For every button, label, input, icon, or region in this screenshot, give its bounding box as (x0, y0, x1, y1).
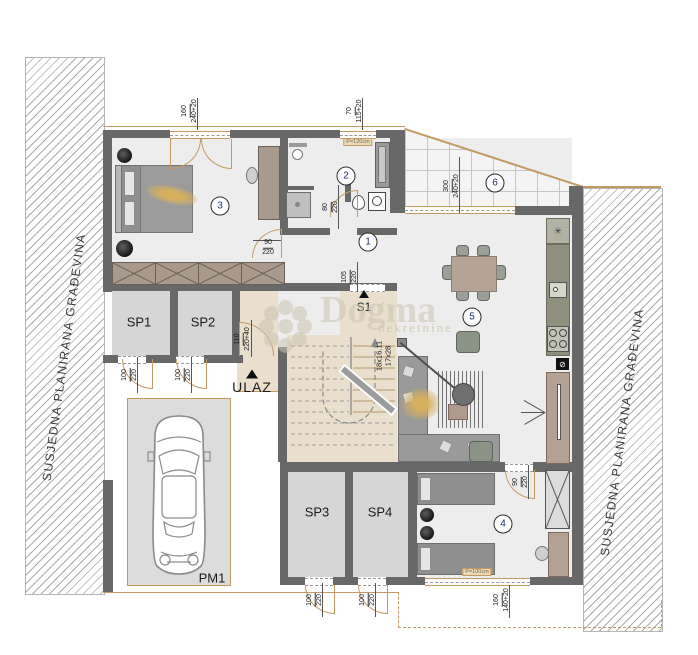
floor-plan: SUSJEDNA PLANIRANA GRAĐEVINA SUSJEDNA PL… (0, 0, 698, 655)
car (141, 410, 217, 578)
dim-bath-door: 80220 (322, 201, 341, 213)
plant-pot (420, 508, 434, 522)
bed-pillow (124, 201, 135, 226)
decor-branch (402, 388, 440, 420)
tv (557, 384, 561, 440)
armchair (469, 441, 493, 462)
sp4-label: SP4 (368, 505, 393, 520)
bathtub-inner (378, 146, 386, 183)
wall (204, 355, 243, 363)
pm1-label: PM1 (199, 571, 226, 586)
cabinet (548, 532, 569, 577)
wall (530, 577, 583, 585)
site-edge-line (583, 186, 661, 188)
garage-front-line (103, 592, 399, 593)
sink-bowl (292, 149, 303, 160)
lot-dashed-line (398, 592, 399, 628)
plant-pot (117, 148, 132, 163)
dim-bedroom-a-window: 160240+20 (181, 99, 200, 123)
kitchen-sink-dot (553, 287, 558, 292)
wall (390, 138, 397, 213)
wall (103, 130, 170, 138)
wall (103, 130, 112, 292)
dim-bath-window: 70115+20 (346, 99, 365, 122)
wall (280, 577, 305, 585)
power-box: ⊘ (556, 358, 569, 370)
bath-partition (288, 186, 314, 190)
wall (103, 355, 118, 363)
fridge: ✳ (546, 218, 570, 244)
lot-dashed-line (398, 627, 661, 628)
floor-lamp-shade (452, 383, 475, 406)
dim-terrace: 300240+20 (443, 174, 462, 198)
lot-dashed-line (661, 600, 662, 627)
room-number-bathroom: 2 (337, 167, 356, 186)
wall (386, 577, 425, 585)
french-door-window (170, 131, 230, 139)
wall (280, 138, 288, 235)
room-number-bedroom-a: 3 (211, 197, 230, 216)
shower-drain (295, 202, 300, 207)
burner (559, 340, 567, 348)
dim-entry-door: 110220+40 (234, 327, 253, 351)
dim-sp4-door: 100220 (359, 593, 378, 607)
entrance-arrow-icon (246, 370, 258, 379)
plant-pot (420, 526, 434, 540)
desk-chair (246, 167, 258, 184)
plant-pot (116, 240, 133, 257)
dim-bedroom-a-door: 90220 (262, 239, 274, 258)
wall (230, 130, 340, 138)
terrace-sliding-door (405, 206, 515, 214)
wall (278, 347, 287, 462)
wardrobe (112, 262, 285, 285)
dim-sp2-door: 100220 (175, 368, 194, 382)
dim-bedroom-b-window: 160140+20 (493, 588, 512, 612)
wall (345, 472, 353, 578)
watermark-tagline: nekretnine (378, 320, 453, 336)
dining-table (451, 256, 497, 292)
desk (258, 146, 280, 220)
coffee-table (448, 404, 468, 420)
watermark-logo (258, 299, 312, 353)
burner (559, 329, 567, 337)
dim-bedroom-b-door: 90220 (512, 476, 531, 488)
wall (103, 480, 113, 592)
wall (333, 577, 358, 585)
sp4-floor (353, 472, 408, 577)
dim-s1-opening: 105220 (341, 270, 360, 284)
dining-chair (477, 245, 490, 256)
sp2-label: SP2 (191, 315, 216, 330)
bed-pillow (420, 547, 431, 571)
burner (549, 329, 557, 337)
dining-chair (496, 265, 506, 280)
wall (170, 291, 178, 361)
sp3-label: SP3 (305, 505, 330, 520)
tv-view-line (521, 412, 545, 413)
bath-parapet-note: P=120cm (343, 138, 372, 146)
wall (280, 472, 288, 585)
dim-sp1-door: 100220 (121, 368, 140, 382)
kitchen-sink (549, 282, 567, 298)
burner (549, 340, 557, 348)
washing-machine-drum (372, 196, 382, 206)
bed-pillow (124, 171, 135, 196)
wall (280, 228, 330, 235)
wall (572, 196, 583, 585)
room-number-bedroom-b: 4 (494, 515, 513, 534)
entrance-label: ULAZ (232, 379, 272, 395)
sink (289, 143, 307, 147)
bedroom-b-parapet-note: P=100cm (462, 568, 491, 576)
wall (408, 472, 417, 578)
bed-pillow (420, 477, 431, 501)
chair (535, 546, 549, 561)
wardrobe (545, 470, 570, 529)
sp1-label: SP1 (127, 315, 152, 330)
dim-sp3-door: 100220 (306, 593, 325, 607)
armchair (456, 331, 480, 353)
room-number-dining: 5 (463, 308, 482, 327)
bedroom-b-window (425, 578, 530, 586)
wall (515, 206, 572, 215)
wall (397, 130, 405, 213)
stair-spec: 18x16.11 17x28 (375, 341, 394, 371)
room-number-hall: 1 (359, 233, 378, 252)
room-number-terrace: 6 (486, 174, 505, 193)
bed-headboard (115, 165, 122, 233)
plan-top-line (103, 126, 405, 127)
wall (280, 462, 505, 472)
sp3-floor (288, 472, 345, 577)
dining-chair (456, 245, 469, 256)
